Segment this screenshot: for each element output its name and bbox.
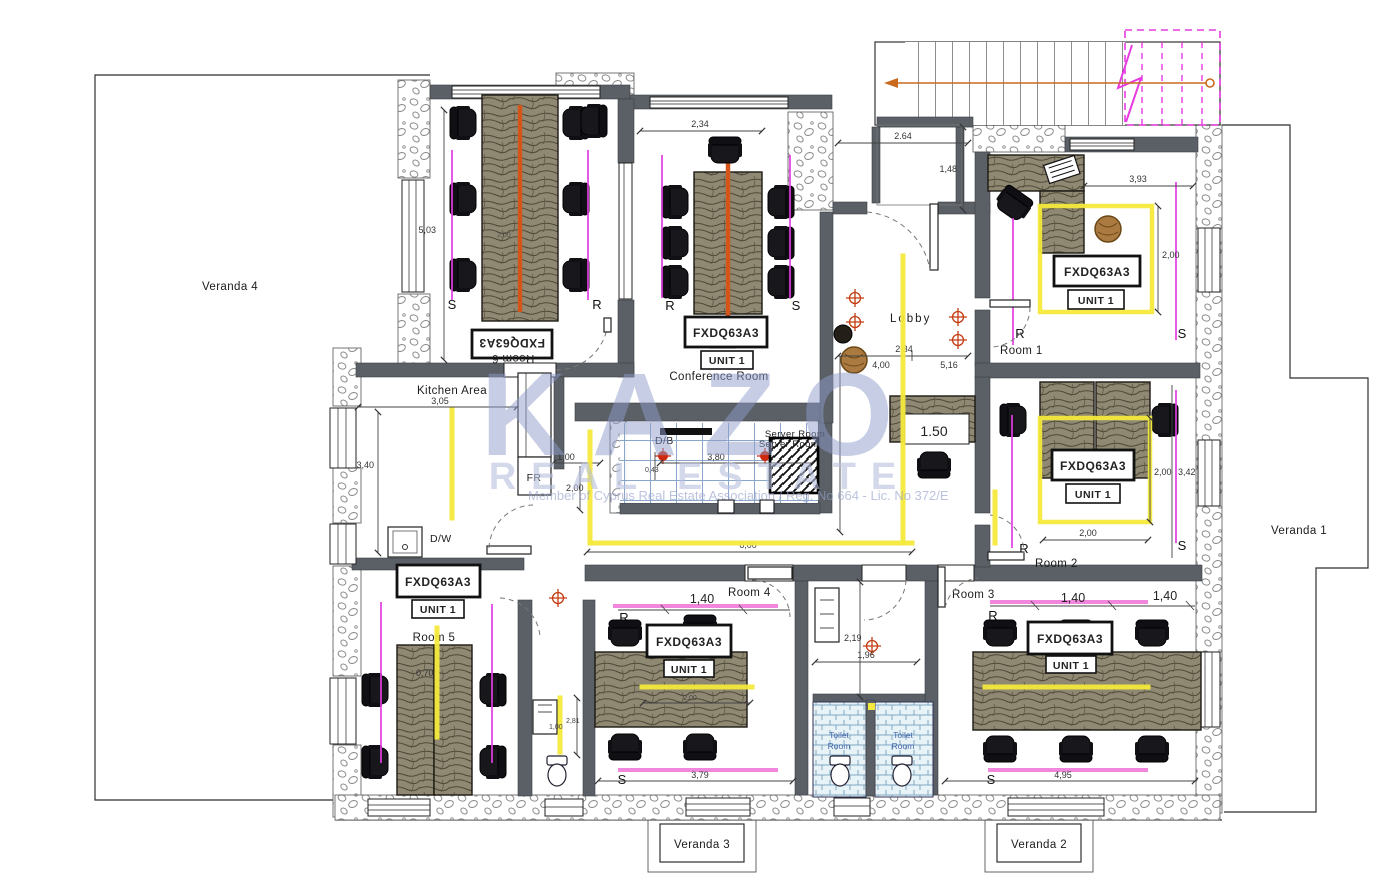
dim-wc5-b: 2,81 xyxy=(566,718,580,725)
dim-stairs-height: 1,48 xyxy=(939,164,957,174)
dishwasher-label: D/W xyxy=(430,533,452,545)
toilet-right-label1: Toilet xyxy=(893,730,913,740)
window xyxy=(619,163,632,299)
plant xyxy=(1095,216,1121,242)
room2-door-leaf xyxy=(988,552,1024,560)
conference-s-marker: S xyxy=(792,298,801,313)
floor-plan-page: 2.64 1,48 S R 5,03 2,00 FXDQ63A3 Room 6 xyxy=(0,0,1398,887)
dim-wc-w: 1,96 xyxy=(857,650,875,660)
dim-room3-t1: 1,40 xyxy=(1061,591,1085,605)
dim-room4-table: 2,00 xyxy=(683,695,697,702)
dim-kitchen-height: 3,40 xyxy=(356,460,374,470)
unit-name-label: UNIT 1 xyxy=(1075,489,1111,501)
window xyxy=(330,408,356,468)
toilet-right-label2: Room xyxy=(892,741,915,751)
window xyxy=(1070,139,1134,150)
dim-kitchen-width: 3,05 xyxy=(431,396,449,406)
room4-door-leaf xyxy=(748,567,792,579)
window xyxy=(834,798,870,816)
toilet xyxy=(892,756,912,786)
dim-wc-h: 2,19 xyxy=(844,633,862,643)
room2-label: Room 2 xyxy=(1035,558,1078,570)
cabinet xyxy=(815,588,839,642)
veranda1-label: Veranda 1 xyxy=(1271,525,1327,537)
toilet-marker xyxy=(868,703,875,710)
dim-room4-t: 1,40 xyxy=(690,592,714,606)
dim-room2-hh: 3,42 xyxy=(1178,467,1196,477)
dim-room2-h: 2,00 xyxy=(1154,467,1172,477)
unit-model-label: FXDQ63A3 xyxy=(1064,265,1130,279)
veranda4-label: Veranda 4 xyxy=(202,281,258,293)
unit-name-label: UNIT 1 xyxy=(1053,660,1089,672)
lobby-label: Lobby xyxy=(890,313,931,325)
window xyxy=(330,524,356,564)
toilet-left-label2: Room xyxy=(828,741,851,751)
dim-reception: 1.50 xyxy=(920,423,947,439)
unit-model-label: FXDQ63A3 xyxy=(656,635,722,649)
dim-room5-table: 0,70 xyxy=(416,668,434,678)
unit-name-label: UNIT 1 xyxy=(671,664,707,676)
dim-room3-t2: 1,40 xyxy=(1153,589,1177,603)
dim-room3-width: 4,95 xyxy=(1054,770,1072,780)
veranda3-label: Veranda 3 xyxy=(674,839,730,851)
window xyxy=(545,799,583,816)
unit-model-label: FXDQ63A3 xyxy=(479,336,545,350)
room6-r-marker: R xyxy=(592,297,601,312)
unit-model-label: FXDQ63A3 xyxy=(1037,632,1103,646)
lobby-stool xyxy=(834,325,852,343)
room6-s-marker: S xyxy=(448,297,457,312)
dim-conference-width: 2,34 xyxy=(691,119,709,129)
unit-model-label: FXDQ63A3 xyxy=(1060,459,1126,473)
window xyxy=(402,180,424,292)
room3-door-leaf xyxy=(938,567,945,607)
window xyxy=(330,678,356,744)
unit-model-label: FXDQ63A3 xyxy=(693,326,759,340)
window xyxy=(650,97,788,108)
dim-room6-height: 5,03 xyxy=(418,225,436,235)
kitchen-label: Kitchen Area xyxy=(417,385,487,397)
toilet xyxy=(830,756,850,786)
dim-lobby-w: 5,16 xyxy=(940,360,958,370)
room3-s-marker: S xyxy=(987,772,996,787)
dim-stairs-width: 2.64 xyxy=(894,131,912,141)
dim-room1-width: 3,93 xyxy=(1129,174,1147,184)
dim-wc5-a: 1,00 xyxy=(549,724,563,731)
room4-label: Room 4 xyxy=(728,587,771,599)
entrance-door-leaf xyxy=(930,204,938,270)
window xyxy=(686,798,750,816)
floor-plan-drawing: 2.64 1,48 S R 5,03 2,00 FXDQ63A3 Room 6 xyxy=(0,0,1398,887)
dim-room1-height: 2,00 xyxy=(1162,250,1180,260)
kazo-watermark: KAZO REAL ESTATE Member of Cyprus Real E… xyxy=(481,349,949,503)
unit-model-label: FXDQ63A3 xyxy=(405,575,471,589)
conference-r-marker: R xyxy=(665,298,674,313)
watermark-note: Member of Cyprus Real Estate Association… xyxy=(528,488,949,503)
unit-name-label: UNIT 1 xyxy=(1078,295,1114,307)
room1-door-leaf xyxy=(990,300,1030,307)
dim-room2-w: 2,00 xyxy=(1079,528,1097,538)
dim-room6-table: 2,00 xyxy=(497,232,511,239)
room5-label: Room 5 xyxy=(413,632,456,644)
kitchen-door-leaf xyxy=(487,546,531,554)
window xyxy=(1198,440,1220,506)
room1-label: Room 1 xyxy=(1000,345,1043,357)
room3-label: Room 3 xyxy=(952,589,995,601)
window xyxy=(1198,228,1220,292)
unit-name-label: UNIT 1 xyxy=(420,604,456,616)
dim-room4-width: 3,79 xyxy=(691,770,709,780)
room4-s-marker: S xyxy=(618,772,627,787)
window xyxy=(368,799,430,816)
toilet xyxy=(547,756,567,786)
room2-s-marker: S xyxy=(1178,538,1187,553)
veranda2-label: Veranda 2 xyxy=(1011,839,1067,851)
window xyxy=(1008,798,1104,816)
toilet-left-label1: Toilet xyxy=(829,730,849,740)
room1-s-marker: S xyxy=(1178,326,1187,341)
